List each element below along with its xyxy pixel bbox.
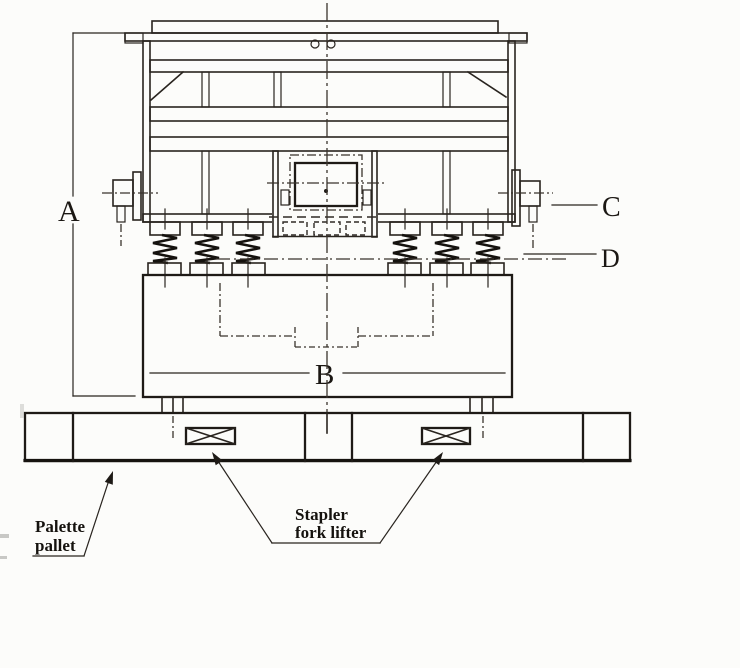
frame-stud [202,72,209,107]
annotation-forklift-line2: fork lifter [295,523,367,542]
annotation-forklift-line1: Stapler [295,505,348,524]
scan-artifacts [0,404,24,559]
machine-top-lid [152,21,498,33]
frame-stud [274,72,281,107]
machine-deck-band [150,60,508,72]
annotation-pallet-line1: Palette [35,517,85,536]
left-shaft-plate [133,172,141,220]
dimension-b-label: B [315,359,334,391]
frame-stud [443,72,450,107]
motor-mount [269,151,381,237]
callout-d-label: D [601,244,620,273]
left-gusset [151,72,183,100]
arrowhead [212,452,223,465]
annotation-forklift-right-leader [380,458,439,543]
right-shaft-tab [529,206,537,222]
annotation-pallet-leader [84,477,110,556]
left-shaft-tab [117,206,125,222]
annotation-forklift-left-leader [216,458,272,543]
annotation-pallet: Palette pallet [33,471,113,556]
arrowhead [105,471,113,485]
pallet [25,413,630,461]
machine-top-flange [125,33,527,41]
callout-c-label: C [602,192,621,223]
frame-stud [443,151,450,214]
machine-mid-band-upper [150,107,508,121]
technical-diagram: A [0,0,740,668]
annotation-pallet-line2: pallet [35,536,76,555]
right-gusset [468,72,506,97]
frame-stud [202,151,209,214]
right-shaft-plate [512,170,520,226]
right-shaft [498,170,553,250]
machine-left-wall [143,41,150,222]
dimension-a: A [58,33,135,396]
machine-mid-band-lower [150,137,508,151]
diagram-canvas: A [0,0,740,668]
arrowhead [432,452,443,465]
fork-pocket-right [422,428,470,444]
fork-pocket-left [186,428,235,444]
callout-c: C [552,192,621,223]
dimension-a-label: A [58,195,80,228]
annotation-forklift: Stapler fork lifter [212,452,443,543]
